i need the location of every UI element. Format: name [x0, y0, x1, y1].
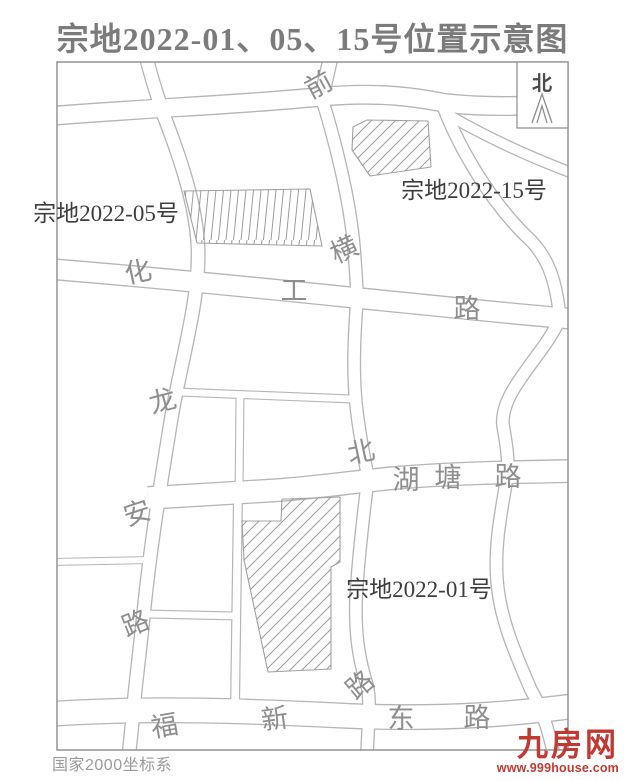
parcel-2022-15-shape: [352, 120, 431, 176]
parcel-2022-05-shape: [184, 189, 322, 246]
road-name-label: 福: [149, 709, 181, 743]
coordinate-system-note: 国家2000坐标系: [52, 751, 172, 775]
road-name-label: 湖: [393, 465, 420, 495]
watermark: 九房网 www.999house.com: [459, 729, 619, 775]
compass-label: 北: [532, 72, 552, 95]
site-url: www.999house.com: [459, 762, 619, 775]
road-name-label: 新: [259, 702, 290, 735]
parcel-map: 北 前横化工路龙安路北湖塘路路福新东路 宗地2022-05号宗地2022-15号…: [0, 0, 625, 781]
parcel-2022-01: 宗地2022-01号: [346, 577, 492, 602]
road-name-label: 东: [388, 704, 415, 734]
road-name-label: 工: [281, 276, 308, 306]
road-name-label: 路: [454, 294, 481, 324]
parcel-2022-05: 宗地2022-05号: [33, 201, 179, 226]
compass: 北: [517, 62, 568, 128]
site-logo: 九房网: [517, 728, 619, 761]
page: 宗地2022-01、05、15号位置示意图: [0, 0, 625, 781]
road-name-label: 塘: [435, 463, 462, 493]
road-name-label: 路: [495, 462, 522, 492]
parcel-2022-15: 宗地2022-15号: [401, 178, 547, 203]
